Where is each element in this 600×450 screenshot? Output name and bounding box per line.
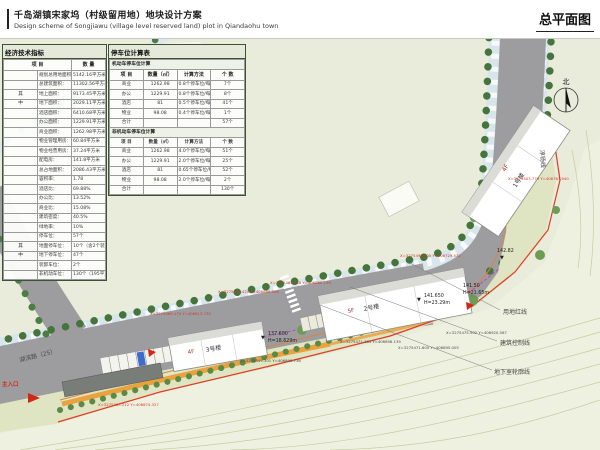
econ-row-group (4, 156, 38, 166)
econ-row-label: 配电房： (38, 156, 72, 166)
econ-row: 非机动车位： 130个（195平方米） (4, 270, 106, 280)
econ-row-label: 装卸车位： (38, 261, 72, 271)
econ-row-label: 停车位： (38, 232, 72, 242)
econ-row: 停车位： 57个 (4, 232, 106, 242)
econ-row-value: 2029.11平方米 (72, 99, 106, 109)
park-row-qty: 1262.98 (143, 147, 177, 157)
spot-1-marker-icon: ▼ (500, 255, 504, 261)
spot-4-height: H=21.65m (463, 290, 489, 296)
park-row-item: 酒店 (110, 166, 144, 176)
econ-row-group (4, 175, 38, 185)
econ-row-label: 酒店比： (38, 185, 72, 195)
econ-row: 规划总用地面积： 5142.16平方米 (4, 71, 106, 81)
econ-row-group (4, 128, 38, 138)
econ-row: 酒店比： 69.88% (4, 185, 106, 195)
econ-row-label: 办公比： (38, 194, 72, 204)
project-title-cn: 千岛湖镇宋家坞（村级留用地）地块设计方案 (14, 8, 202, 21)
spot-1-value: 142.82 (497, 248, 514, 254)
econ-row-value: 1262.98平方米 (72, 128, 106, 138)
econ-row-label: 商业比： (38, 204, 72, 214)
econ-row: 绿地率： 10% (4, 223, 106, 233)
control-line-label: 建筑控制线 (500, 339, 530, 347)
red-line-label: 用地红线 (503, 308, 527, 316)
park-row-method: 0.65个停车位/每间 (177, 166, 211, 176)
econ-row: 办公比： 13.52% (4, 194, 106, 204)
econ-row-value: 10% (72, 223, 106, 233)
econ-row-value: 2086.43平方米 (72, 166, 106, 176)
park-row-item: 合计 (110, 185, 144, 195)
park-row-item: 酒店 (110, 99, 144, 109)
motor-parking-row: 酒店 81 0.5个停车位/每间 41个 (110, 99, 245, 109)
econ-row-value: 11302.56平方米 (72, 80, 106, 90)
econ-row-label: 非机动车位： (38, 270, 72, 280)
econ-row-group (4, 270, 38, 280)
economic-indicators-panel: 经济技术指标 项 目 数 量 规划总用地面积： 5142.16平方米 (2, 44, 107, 281)
entrance-label: 主入口 (2, 380, 19, 388)
motor-parking-row: 合计 57个 (110, 118, 245, 128)
park-row-method (177, 118, 211, 128)
park-col-qty: 数量（㎡） (143, 138, 177, 148)
econ-row-group (4, 71, 38, 81)
econ-row-value: 1229.91平方米 (72, 118, 106, 128)
econ-row-value: 60.84平方米 (72, 137, 106, 147)
econ-col-qty: 数 量 (72, 60, 106, 71)
north-label: 北 (563, 78, 570, 86)
econ-row-label: 酒店面积： (38, 109, 72, 119)
park-row-count: 1个 (211, 109, 245, 119)
drawing-sheet: 千岛湖镇宋家坞（村级留用地）地块设计方案 Design scheme of So… (0, 0, 600, 450)
econ-row: 商业面积： 1262.98平方米 (4, 128, 106, 138)
econ-row-label: 物业管理用房： (38, 137, 72, 147)
coord-callout: X=3275460.174 Y=406813.730 (150, 311, 211, 316)
econ-row-group (4, 118, 38, 128)
motor-parking-row: 办公 1229.91 0.8个停车位/每100㎡建筑面积 8个 (110, 90, 245, 100)
park-col-method: 计算方法 (177, 69, 211, 80)
econ-row-value: 10个（含2个装卸车位） (72, 242, 106, 252)
econ-row-group: 其 (4, 90, 38, 100)
park-row-qty: 1229.91 (143, 90, 177, 100)
coord-callout: X=3275449.301 Y=406890.738 (240, 358, 301, 363)
park-row-method (177, 185, 211, 195)
park-row-count: 8个 (211, 90, 245, 100)
econ-row: 中 地下停车位： 47个 (4, 251, 106, 261)
econ-row-value: 40.5% (72, 213, 106, 223)
econ-col-item: 项 目 (4, 60, 72, 71)
econ-row: 物业管理用房： 60.84平方米 (4, 137, 106, 147)
park-row-count: 57个 (211, 118, 245, 128)
coord-callout: X=3275471.485 Y=406898.139 (340, 339, 401, 344)
spot-2-value: 141.650 (424, 293, 444, 299)
econ-row-group (4, 80, 38, 90)
park-col-qty: 数量（㎡） (143, 69, 177, 80)
econ-row-group (4, 137, 38, 147)
econ-row-group (4, 185, 38, 195)
econ-row: 物业经营用房： 37.24平方米 (4, 147, 106, 157)
spot-3-marker-icon: ▼ (261, 335, 265, 341)
sheet-name: 总平面图 (536, 9, 594, 32)
econ-row: 装卸车位： 2个 (4, 261, 106, 271)
spot-2-marker-icon: ▼ (417, 297, 421, 303)
econ-row-group (4, 261, 38, 271)
econ-row-label: 地上面积： (38, 90, 72, 100)
econ-row-label: 总建筑面积： (38, 80, 72, 90)
coord-callout: X=3275503.779 Y=406767.940 (508, 176, 569, 181)
coord-callout: X=3275465.212 Y=406874.327 (98, 402, 159, 407)
econ-row-label: 规划总用地面积： (38, 71, 72, 81)
building-3-floors: 4F (187, 349, 195, 356)
spot-2-height: H=23.29m (424, 300, 450, 306)
park-col-count: 个 数 (211, 138, 245, 148)
nonmotor-parking-row: 办公 1229.91 2.0个停车位/每100㎡建筑面积 25个 (110, 157, 245, 167)
park-row-item: 合计 (110, 118, 144, 128)
economic-indicators-table: 项 目 数 量 规划总用地面积： 5142.16平方米 总建筑面积： (3, 59, 106, 280)
coord-callout: X=3275475.502 Y=406920.567 (446, 330, 507, 335)
econ-row-label: 容积率： (38, 175, 72, 185)
park-row-item: 办公 (110, 90, 144, 100)
park-row-qty: 98.08 (143, 109, 177, 119)
park-row-count: 41个 (211, 99, 245, 109)
park-row-item: 商业 (110, 80, 144, 90)
parking-table-title: 停车位计算表 (109, 45, 245, 59)
econ-row: 其 地上面积： 9173.45平方米 (4, 90, 106, 100)
econ-row-value: 141.8平方米 (72, 156, 106, 166)
econ-row-group (4, 223, 38, 233)
econ-row: 总占地面积： 2086.43平方米 (4, 166, 106, 176)
econ-row: 配电房： 141.8平方米 (4, 156, 106, 166)
park-row-qty: 81 (143, 99, 177, 109)
econ-row-group (4, 147, 38, 157)
econ-row-value: 130个（195平方米） (72, 270, 106, 280)
econ-row-label: 地下面积： (38, 99, 72, 109)
econ-row-value: 37.24平方米 (72, 147, 106, 157)
park-row-qty (143, 118, 177, 128)
econ-row: 办公面积： 1229.91平方米 (4, 118, 106, 128)
spot-3-height: H=18.629m (268, 338, 297, 344)
econ-row: 酒店面积： 6410.68平方米 (4, 109, 106, 119)
motor-parking-row: 商业 1262.98 0.8个停车位/每100㎡建筑面积 7个 (110, 80, 245, 90)
econ-row: 中 地下面积： 2029.11平方米 (4, 99, 106, 109)
econ-row: 建筑密度： 40.5% (4, 213, 106, 223)
nonmotor-section-title: 非机动车停车位计算 (110, 128, 245, 138)
park-row-count: 2个 (211, 176, 245, 186)
econ-row-group: 其 (4, 242, 38, 252)
econ-row-value: 57个 (72, 232, 106, 242)
coord-callout: X=3275494.100 Y=406729.532 (400, 253, 461, 258)
park-row-method: 2.0个停车位/每100㎡建筑面积 (177, 176, 211, 186)
econ-row-group (4, 194, 38, 204)
econ-row-label: 总占地面积： (38, 166, 72, 176)
nonmotor-parking-row: 物业 98.08 2.0个停车位/每100㎡建筑面积 2个 (110, 176, 245, 186)
econ-row-label: 办公面积： (38, 118, 72, 128)
econ-row-label: 地下停车位： (38, 251, 72, 261)
park-row-item: 物业 (110, 176, 144, 186)
econ-row-value: 13.52% (72, 194, 106, 204)
coord-callout: X=3275481.458 Y=406880.139 (270, 280, 331, 285)
econ-row-group: 中 (4, 251, 38, 261)
road-name-chunyang: 淳杨线 (538, 150, 547, 169)
econ-row: 商业比： 15.08% (4, 204, 106, 214)
parking-calculation-table: 机动车停车位计算 项 目 数量（㎡） 计算方法 个 数 商业 1262.98 0… (109, 59, 245, 195)
park-row-method: 0.5个停车位/每间 (177, 99, 211, 109)
park-row-item: 商业 (110, 147, 144, 157)
park-row-method: 2.0个停车位/每100㎡建筑面积 (177, 157, 211, 167)
econ-row: 容积率： 1.78 (4, 175, 106, 185)
econ-row-value: 69.88% (72, 185, 106, 195)
park-row-method: 4.0个停车位/每100㎡建筑面积 (177, 147, 211, 157)
park-row-item: 物业 (110, 109, 144, 119)
park-row-count: 130个 (211, 185, 245, 195)
motor-section-title: 机动车停车位计算 (110, 60, 245, 70)
park-row-method: 0.8个停车位/每100㎡建筑面积 (177, 80, 211, 90)
econ-row-value: 5142.16平方米 (72, 71, 106, 81)
park-row-method: 0.4个停车位/每户 (177, 109, 211, 119)
park-row-qty: 1229.91 (143, 157, 177, 167)
park-row-count: 51个 (211, 147, 245, 157)
econ-row-value: 2个 (72, 261, 106, 271)
econ-row-value: 9173.45平方米 (72, 90, 106, 100)
economic-indicators-title: 经济技术指标 (3, 45, 106, 59)
park-col-count: 个 数 (211, 69, 245, 80)
econ-row-value: 6410.68平方米 (72, 109, 106, 119)
econ-row-group (4, 213, 38, 223)
spot-4-value: 141.50 (463, 283, 480, 289)
nonmotor-parking-row: 酒店 81 0.65个停车位/每间 52个 (110, 166, 245, 176)
park-row-qty: 81 (143, 166, 177, 176)
park-col-item: 项 目 (110, 69, 144, 80)
econ-row-group (4, 166, 38, 176)
coord-callout: X=3275471.605 Y=406895.005 (398, 345, 459, 350)
nonmotor-parking-row: 合计 130个 (110, 185, 245, 195)
econ-row-label: 物业经营用房： (38, 147, 72, 157)
econ-row-value: 1.78 (72, 175, 106, 185)
econ-row-group (4, 204, 38, 214)
econ-row-label: 绿地率： (38, 223, 72, 233)
econ-row-group: 中 (4, 99, 38, 109)
park-col-item: 项 目 (110, 138, 144, 148)
park-row-method: 0.8个停车位/每100㎡建筑面积 (177, 90, 211, 100)
econ-row-label: 地面停车位： (38, 242, 72, 252)
nonmotor-parking-row: 商业 1262.98 4.0个停车位/每100㎡建筑面积 51个 (110, 147, 245, 157)
econ-row-value: 15.08% (72, 204, 106, 214)
econ-row-label: 建筑密度： (38, 213, 72, 223)
econ-row-group (4, 232, 38, 242)
park-row-qty: 98.08 (143, 176, 177, 186)
econ-row-label: 商业面积： (38, 128, 72, 138)
park-col-method: 计算方法 (177, 138, 211, 148)
parking-calculation-panel: 停车位计算表 机动车停车位计算 项 目 数量（㎡） 计算方法 个 数 商业 12… (108, 44, 246, 196)
park-row-item: 办公 (110, 157, 144, 167)
park-row-count: 25个 (211, 157, 245, 167)
park-row-count: 7个 (211, 80, 245, 90)
project-title-en: Design scheme of Songjiawu (village leve… (14, 22, 278, 30)
park-row-qty (143, 185, 177, 195)
spot-3-value: 137.600 (268, 331, 288, 337)
building-2-floors: 5F (347, 308, 355, 315)
park-row-count: 52个 (211, 166, 245, 176)
coord-callout: X=3275476.420 Y=406850.308 (218, 289, 279, 294)
econ-row: 总建筑面积： 11302.56平方米 (4, 80, 106, 90)
basement-line-label: 地下室轮廓线 (494, 368, 530, 376)
park-row-qty: 1262.98 (143, 80, 177, 90)
econ-row-value: 47个 (72, 251, 106, 261)
econ-row-group (4, 109, 38, 119)
sheet-header: 千岛湖镇宋家坞（村级留用地）地块设计方案 Design scheme of So… (0, 0, 600, 39)
title-accent-bar (7, 9, 9, 29)
motor-parking-row: 物业 98.08 0.4个停车位/每户 1个 (110, 109, 245, 119)
econ-row: 其 地面停车位： 10个（含2个装卸车位） (4, 242, 106, 252)
